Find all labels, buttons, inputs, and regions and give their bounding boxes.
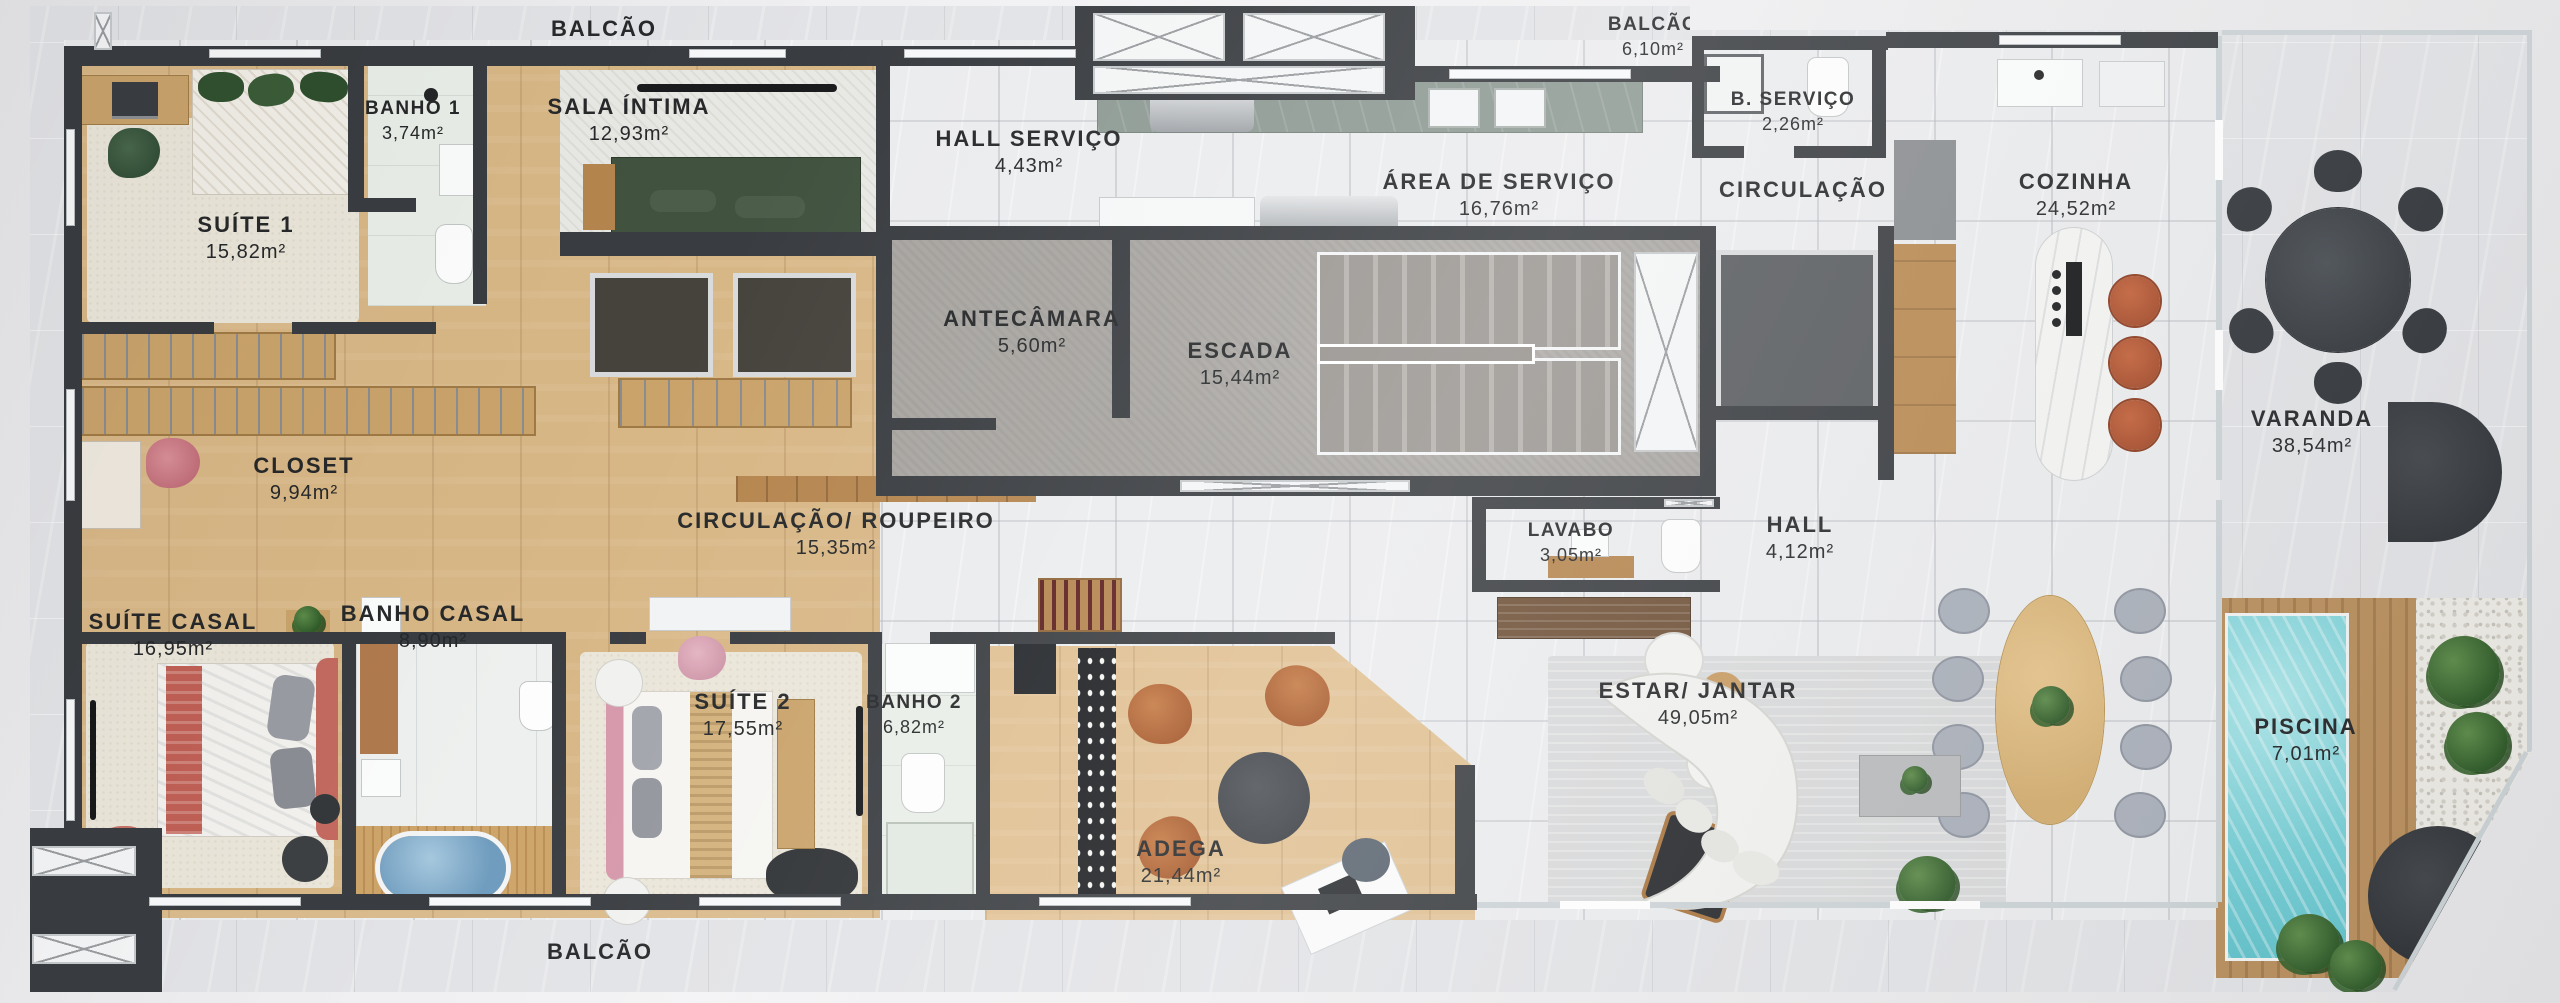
suite-casal-tv — [90, 700, 96, 820]
dining-chair — [2120, 656, 2172, 702]
vent-hatch-icon — [32, 846, 136, 876]
floor-service-room — [1716, 250, 1878, 418]
window — [905, 50, 1075, 57]
dining-chair — [1938, 588, 1990, 634]
room-label-cozinha: COZINHA24,52m² — [2019, 169, 2133, 221]
room-label-estar-jantar: ESTAR/ JANTAR49,05m² — [1599, 678, 1798, 730]
coffee-table-plant — [1902, 766, 1928, 792]
banho-casal-toilet — [520, 682, 556, 730]
dining-chair — [2120, 724, 2172, 770]
varanda-rail-top — [2222, 30, 2532, 35]
kitchen-sink — [1998, 60, 2082, 106]
suite2-pillow — [632, 778, 662, 838]
sala-intima-cushion — [650, 190, 716, 212]
kitchen-coffee-station — [2100, 62, 2164, 106]
room-label-balcao-bottom: BALCÃO — [547, 939, 653, 965]
window — [150, 898, 300, 905]
window — [430, 898, 590, 905]
room-label-balcao-servico: BALCÃO6,10m² — [1608, 14, 1698, 60]
room-label-circulacao-roupeiro: CIRCULAÇÃO/ ROUPEIRO15,35m² — [677, 508, 994, 560]
banho-casal-tub — [380, 836, 506, 900]
island-cooktop — [2066, 262, 2082, 336]
elevator-3-icon — [1634, 252, 1698, 452]
elevator-2-icon — [1243, 13, 1385, 61]
plant-pebble-2 — [2446, 712, 2508, 772]
bar-stool — [2110, 276, 2160, 326]
stair-railing — [1320, 347, 1532, 361]
elevator-lobby-hatch-icon — [1093, 66, 1385, 94]
cooktop-knob-icon — [2052, 302, 2061, 311]
pool-water — [2228, 616, 2346, 958]
room-label-balcao-top: BALCÃO — [551, 16, 657, 42]
room-label-sala-intima: SALA ÍNTIMA12,93m² — [548, 94, 711, 146]
room-label-piscina: PISCINA7,01m² — [2254, 714, 2357, 766]
varanda-chair — [2314, 150, 2362, 192]
glass-wall-estar-varanda — [2216, 500, 2222, 902]
adega-desk-chair — [1342, 838, 1390, 882]
lavabo-vent-icon — [1664, 499, 1714, 507]
lavabo-toilet — [1662, 520, 1700, 572]
banho-casal-counter — [360, 640, 398, 754]
cooktop-knob-icon — [2052, 286, 2061, 295]
banho2-vanity — [886, 644, 974, 692]
adega-round-table — [1218, 752, 1310, 844]
shaft-hatch-icon — [94, 12, 112, 50]
window — [210, 50, 320, 57]
bar-stool — [2110, 338, 2160, 388]
banho1-sink — [440, 145, 473, 195]
window — [67, 390, 74, 500]
banho-casal-sink-2 — [362, 760, 400, 796]
round-lounger — [2368, 826, 2508, 966]
wardrobe-volume — [738, 278, 851, 372]
room-label-circulacao: CIRCULAÇÃO — [1719, 177, 1887, 203]
suite-casal-runner — [166, 666, 202, 834]
sala-intima-side-table — [583, 164, 615, 230]
window — [690, 50, 785, 57]
service-window — [1450, 70, 1630, 78]
banho1-toilet — [436, 225, 472, 283]
room-label-closet: CLOSET9,94m² — [253, 453, 354, 505]
dining-chair — [1932, 656, 1984, 702]
stair-flight-upper — [1320, 255, 1618, 347]
window — [67, 700, 74, 820]
suite-casal-pillow — [266, 673, 316, 742]
room-label-suite-1: SUÍTE 115,82m² — [197, 212, 294, 264]
suite2-pouf — [596, 660, 642, 706]
suite-casal-side-table — [282, 836, 328, 882]
closet-dresser — [82, 442, 140, 528]
room-label-suite-2: SUÍTE 217,55m² — [694, 689, 791, 741]
room-label-antecamara: ANTECÂMARA5,60m² — [943, 306, 1121, 358]
room-label-escada: ESCADA15,44m² — [1188, 338, 1293, 390]
wardrobe-volume — [595, 278, 708, 372]
room-label-area-de-servico: ÁREA DE SERVIÇO16,76m² — [1383, 169, 1616, 221]
tv-sideboard — [1498, 598, 1690, 638]
room-label-banho-2: BANHO 26,82m² — [866, 692, 962, 738]
floor-plan-stage: BALCÃO BANHO 13,74m² SALA ÍNTIMA12,93m² … — [0, 0, 2560, 1003]
vent-hatch-icon — [32, 934, 136, 964]
elevator-1-icon — [1093, 13, 1225, 61]
room-label-lavabo: LAVABO3,05m² — [1528, 520, 1614, 566]
room-label-hall-servico: HALL SERVIÇO4,43m² — [936, 126, 1123, 178]
glass-wall-kitchen-varanda — [2216, 36, 2222, 480]
wine-shelf — [1040, 580, 1120, 630]
stair-flight-lower — [1320, 361, 1618, 452]
banho2-shower — [886, 822, 974, 904]
wine-tower — [1014, 636, 1056, 694]
suite2-vanity — [650, 598, 790, 630]
window — [1040, 898, 1190, 905]
dining-table-plant — [2032, 686, 2070, 724]
cooktop-knob-icon — [2052, 318, 2061, 327]
dining-chair — [2114, 792, 2166, 838]
adega-wine-rack — [1078, 648, 1116, 898]
service-sink-1 — [1428, 88, 1480, 128]
room-label-banho-casal: BANHO CASAL8,90m² — [341, 601, 526, 653]
suite2-headboard-pink — [606, 690, 624, 880]
room-label-b-servico: B. SERVIÇO2,26m² — [1731, 89, 1855, 135]
varanda-chair — [2314, 362, 2362, 404]
sala-intima-cushion — [735, 196, 805, 218]
service-sink-2 — [1494, 88, 1546, 128]
plant-pool-2 — [2330, 940, 2382, 990]
varanda-round-table — [2266, 208, 2410, 352]
window — [700, 898, 840, 905]
kitchen-faucet-icon — [2034, 70, 2044, 80]
kitchen-window — [2000, 36, 2120, 44]
kitchen-cabinet-gray — [1894, 140, 1956, 240]
bar-stool — [2110, 400, 2160, 450]
suite-casal-side-table-small — [310, 794, 340, 824]
suite-casal-pillow — [269, 746, 317, 810]
varanda-rail-right — [2527, 30, 2532, 752]
apartment-plan: BALCÃO BANHO 13,74m² SALA ÍNTIMA12,93m² … — [0, 0, 2560, 1003]
closet-rack — [82, 388, 534, 434]
room-label-varanda: VARANDA38,54m² — [2251, 406, 2373, 458]
suite1-laptop — [112, 82, 158, 116]
banho2-toilet — [902, 754, 944, 812]
room-label-hall: HALL4,12m² — [1766, 512, 1834, 564]
adega-armchair — [1128, 684, 1192, 744]
sala-intima-tv — [637, 84, 837, 92]
cooktop-knob-icon — [2052, 270, 2061, 279]
suite-casal-plant — [294, 606, 322, 634]
plant-pebble-1 — [2428, 636, 2500, 706]
room-label-adega: ADEGA21,44m² — [1136, 836, 1225, 888]
suite1-pillow — [198, 72, 244, 102]
sala-intima-sofa — [612, 158, 860, 236]
dining-chair — [2114, 588, 2166, 634]
room-label-suite-casal: SUÍTE CASAL16,95m² — [89, 609, 258, 661]
suite2-tv — [856, 706, 863, 816]
room-label-banho-1: BANHO 13,74m² — [365, 98, 461, 144]
core-window-hatch-icon — [1180, 480, 1410, 492]
window — [67, 130, 74, 225]
closet-rack — [82, 334, 334, 378]
kitchen-cabinet-wood — [1894, 244, 1956, 454]
roupeiro-rack — [620, 380, 850, 426]
suite2-pillow — [632, 706, 662, 770]
